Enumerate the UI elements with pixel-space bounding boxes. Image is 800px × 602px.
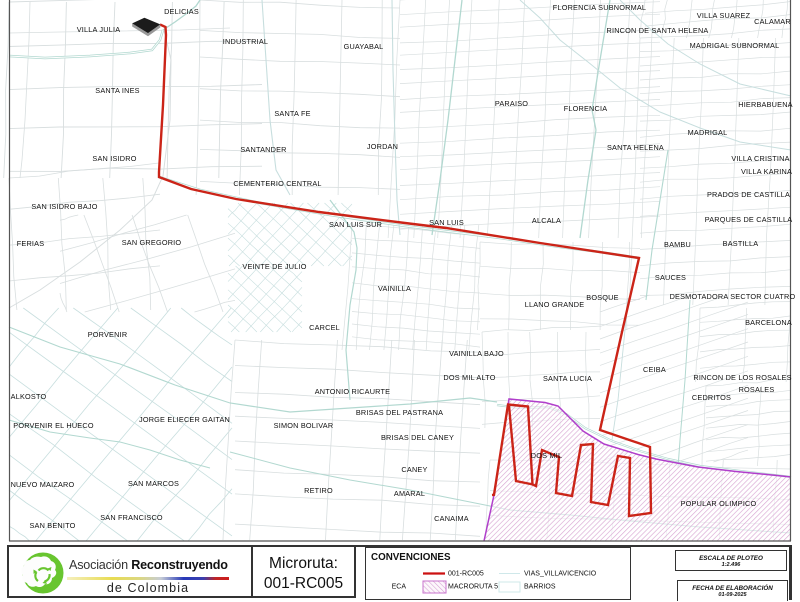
- svg-text:SAN BENITO: SAN BENITO: [29, 521, 75, 530]
- svg-text:SANTA HELENA: SANTA HELENA: [607, 143, 664, 152]
- svg-text:BAMBU: BAMBU: [664, 240, 691, 249]
- svg-text:INDUSTRIAL: INDUSTRIAL: [223, 37, 268, 46]
- svg-text:SAN ISIDRO: SAN ISIDRO: [92, 154, 136, 163]
- svg-text:VAINILLA BAJO: VAINILLA BAJO: [449, 349, 504, 358]
- svg-text:CEIBA: CEIBA: [643, 365, 666, 374]
- svg-text:CANAIMA: CANAIMA: [434, 514, 469, 523]
- svg-text:SAN LUIS: SAN LUIS: [429, 218, 464, 227]
- svg-text:PARQUES DE CASTILLA: PARQUES DE CASTILLA: [705, 215, 793, 224]
- svg-text:CALAMAR: CALAMAR: [754, 17, 791, 26]
- svg-text:JORDAN: JORDAN: [367, 142, 398, 151]
- svg-text:FLORENCIA: FLORENCIA: [564, 104, 608, 113]
- svg-text:MACRORUTA 5: MACRORUTA 5: [448, 584, 498, 591]
- svg-text:RINCON DE LOS ROSALES: RINCON DE LOS ROSALES: [693, 373, 791, 382]
- svg-text:SAN GREGORIO: SAN GREGORIO: [122, 238, 182, 247]
- svg-text:SANTANDER: SANTANDER: [240, 145, 286, 154]
- svg-text:MADRIGAL: MADRIGAL: [688, 128, 728, 137]
- svg-text:ECA: ECA: [392, 584, 407, 591]
- svg-text:NUEVO MAIZARO: NUEVO MAIZARO: [11, 480, 75, 489]
- svg-text:ANTONIO RICAURTE: ANTONIO RICAURTE: [315, 387, 391, 396]
- svg-text:VILLA JULIA: VILLA JULIA: [77, 25, 121, 34]
- svg-text:DESMOTADORA SECTOR CUATRO: DESMOTADORA SECTOR CUATRO: [670, 292, 796, 301]
- svg-text:001-RC005: 001-RC005: [448, 571, 484, 578]
- svg-text:Asociación Reconstruyendo: Asociación Reconstruyendo: [69, 558, 228, 572]
- svg-text:VILLA SUAREZ: VILLA SUAREZ: [697, 11, 751, 20]
- svg-text:BASTILLA: BASTILLA: [723, 239, 759, 248]
- svg-text:SAN MARCOS: SAN MARCOS: [128, 479, 179, 488]
- svg-text:SANTA INES: SANTA INES: [95, 86, 139, 95]
- svg-text:SAN ISIDRO BAJO: SAN ISIDRO BAJO: [31, 202, 97, 211]
- svg-text:ALKOSTO: ALKOSTO: [11, 392, 47, 401]
- svg-text:PORVENIR EL HUECO: PORVENIR EL HUECO: [13, 421, 94, 430]
- svg-text:SANTA LUCIA: SANTA LUCIA: [543, 374, 592, 383]
- svg-text:RETIRO: RETIRO: [304, 486, 333, 495]
- svg-text:DELICIAS: DELICIAS: [164, 7, 199, 16]
- svg-text:BARRIOS: BARRIOS: [524, 584, 556, 591]
- svg-text:SANTA FE: SANTA FE: [274, 109, 310, 118]
- svg-text:DOS MIL: DOS MIL: [531, 451, 562, 460]
- svg-text:PRADOS DE CASTILLA: PRADOS DE CASTILLA: [707, 190, 790, 199]
- svg-text:VIAS_VILLAVICENCIO: VIAS_VILLAVICENCIO: [524, 571, 597, 578]
- svg-text:DOS MIL ALTO: DOS MIL ALTO: [443, 373, 495, 382]
- svg-text:FLORENCIA SUBNORMAL: FLORENCIA SUBNORMAL: [553, 3, 646, 12]
- svg-text:ROSALES: ROSALES: [739, 385, 775, 394]
- svg-text:BRISAS DEL CANEY: BRISAS DEL CANEY: [381, 433, 454, 442]
- svg-text:HIERBABUENA: HIERBABUENA: [738, 100, 793, 109]
- svg-text:AMARAL: AMARAL: [394, 489, 425, 498]
- svg-text:PORVENIR: PORVENIR: [88, 330, 128, 339]
- svg-text:FERIAS: FERIAS: [17, 239, 45, 248]
- svg-text:BRISAS DEL PASTRANA: BRISAS DEL PASTRANA: [356, 408, 443, 417]
- svg-text:BARCELONA: BARCELONA: [745, 318, 792, 327]
- svg-text:VILLA CRISTINA: VILLA CRISTINA: [731, 154, 789, 163]
- svg-text:VAINILLA: VAINILLA: [378, 284, 411, 293]
- svg-text:SIMON BOLIVAR: SIMON BOLIVAR: [274, 421, 334, 430]
- svg-text:GUAYABAL: GUAYABAL: [344, 42, 384, 51]
- svg-text:CARCEL: CARCEL: [309, 323, 340, 332]
- svg-text:PARAISO: PARAISO: [495, 99, 528, 108]
- svg-text:VILLA KARINA: VILLA KARINA: [741, 167, 792, 176]
- svg-text:CANEY: CANEY: [401, 465, 427, 474]
- svg-text:BOSQUE: BOSQUE: [586, 293, 618, 302]
- svg-text:SAN LUIS SUR: SAN LUIS SUR: [329, 220, 382, 229]
- svg-text:VEINTE DE JULIO: VEINTE DE JULIO: [242, 262, 306, 271]
- svg-text:MADRIGAL SUBNORMAL: MADRIGAL SUBNORMAL: [690, 41, 780, 50]
- svg-text:SAUCES: SAUCES: [655, 273, 686, 282]
- svg-text:SAN FRANCISCO: SAN FRANCISCO: [100, 513, 163, 522]
- svg-text:CEMENTERIO CENTRAL: CEMENTERIO CENTRAL: [233, 179, 321, 188]
- svg-text:RINCON DE SANTA HELENA: RINCON DE SANTA HELENA: [607, 26, 709, 35]
- svg-text:de Colombia: de Colombia: [107, 581, 189, 595]
- svg-text:ALCALA: ALCALA: [532, 216, 561, 225]
- svg-text:POPULAR OLIMPICO: POPULAR OLIMPICO: [681, 499, 757, 508]
- svg-text:JORGE ELIECER GAITAN: JORGE ELIECER GAITAN: [139, 415, 230, 424]
- svg-text:LLANO GRANDE: LLANO GRANDE: [525, 300, 585, 309]
- svg-text:CEDRITOS: CEDRITOS: [692, 393, 731, 402]
